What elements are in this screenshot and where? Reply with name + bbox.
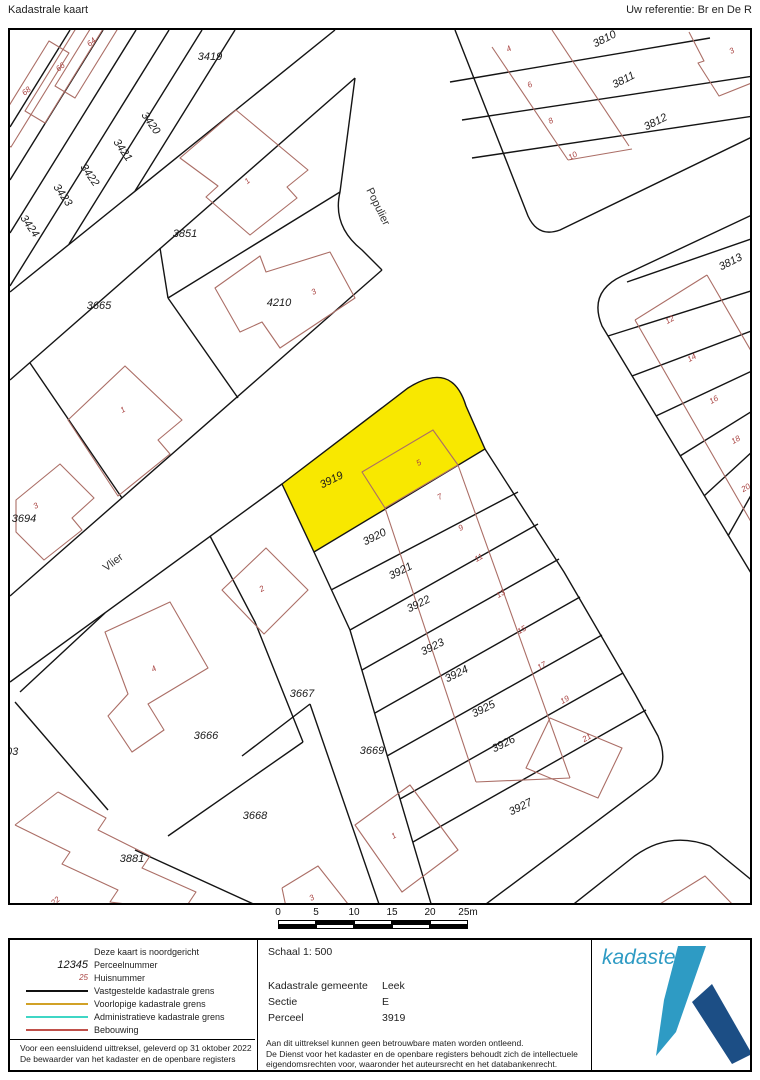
parcel-number-label: 3666 [194,730,219,742]
scale-tick-label: 15 [386,907,397,918]
scale-bar-segment [392,924,430,929]
legend-label: Voorlopige kadastrale grens [94,999,206,1009]
parcel-number-label: 3423 [51,182,75,210]
parcel-number-label: 3811 [610,70,637,91]
house-number-label: 17 [536,659,549,672]
house-number-label: 7 [436,492,445,502]
detail-value: E [382,996,389,1008]
parcel-number-label: 3923 [419,636,447,658]
scale-tick-label: 0 [275,907,281,918]
parcel-number-label: 3926 [490,733,518,755]
house-number-label: 4 [150,664,159,674]
scale-bar: 0510152025m [262,907,492,933]
legend-row: Administratieve kadastrale grens [10,1011,250,1024]
kadaster-logo: kadaster [592,940,750,1070]
footer-panel: Deze kaart is noordgericht12345Perceelnu… [8,938,752,1072]
parcel-number-label: 3925 [470,698,498,720]
disclaimer-line: Aan dit uittreksel kunnen geen betrouwba… [266,1038,524,1048]
house-number-label: 9 [457,523,466,533]
scale-tick-label: 25m [458,907,477,918]
legend-row: 12345Perceelnummer [10,959,250,972]
legend-label: Administratieve kadastrale grens [94,1012,225,1022]
parcel-number-label: 3665 [87,300,112,312]
house-number-label: 11 [473,552,485,564]
house-number-label: 3 [308,893,317,903]
parcel-number-label: 3419 [198,51,222,63]
legend-row: Voorlopige kadastrale grens [10,998,250,1011]
legend-note: Voor een eensluidend uittreksel, gelever… [20,1043,252,1053]
detail-value: Leek [382,980,405,992]
scale-bar-segment [354,924,392,929]
street-name-label: Populier [363,186,392,228]
house-number-label: 19 [559,693,572,706]
legend-row: Bebouwing [10,1024,250,1037]
scale-tick-label: 10 [348,907,359,918]
house-number-label: 1 [119,405,127,415]
detail-label: Perceel [268,1012,304,1024]
legend-symbol [20,1024,88,1037]
legend-label: Huisnummer [94,973,145,983]
detail-row: Perceel3919 [268,1012,304,1024]
house-number-label: 1 [390,831,398,841]
parcel-number-label: 3851 [173,228,197,240]
house-number-label: 3 [310,287,319,297]
detail-row: SectieE [268,996,297,1008]
parcel-number-label: 3813 [717,251,745,273]
scale-bar-segment [278,924,316,929]
kadastrale-kaart-page: Kadastrale kaart Uw referentie: Br en De… [0,0,760,1080]
house-number-label: 18 [730,433,743,446]
parcel-number-label: 3422 [78,162,102,189]
scale-text: Schaal 1: 500 [268,946,332,958]
house-number-label: 1 [243,176,252,186]
parcel-number-label: 3420 [139,110,163,138]
parcel-number-label: 3921 [387,560,414,582]
house-number-label: 20 [739,481,750,494]
street-name-label: Vlier [101,551,126,574]
parcel-number-label: 3424 [18,213,42,240]
parcel-number-label: 3903 [10,746,19,758]
detail-label: Sectie [268,996,297,1008]
detail-row: Kadastrale gemeenteLeek [268,980,368,992]
house-number-label: 15 [516,623,529,636]
legend-symbol [20,946,88,959]
parcel-number-label: 3924 [443,663,470,685]
house-number-label: 3 [728,46,737,56]
house-number-label: 66 [54,60,67,73]
detail-label: Kadastrale gemeente [268,980,368,992]
parcel-number-label: 3920 [361,526,389,548]
legend-label: Perceelnummer [94,960,158,970]
house-number-label: 4 [505,44,514,54]
parcel-number-label: 3669 [360,745,384,757]
detail-value: 3919 [382,1012,405,1024]
house-number-label: 3 [32,501,41,511]
parcel-number-label: 3694 [12,513,36,525]
legend-symbol: 12345 [20,959,88,972]
legend-label: Bebouwing [94,1025,139,1035]
parcel-number-label: 3927 [507,796,535,818]
legend-symbol [20,985,88,998]
house-number-label: 6 [526,80,535,90]
parcel-number-label: 3810 [591,30,619,50]
reference-text: Uw referentie: Br en De R [626,4,752,16]
header: Kadastrale kaart Uw referentie: Br en De… [8,4,752,16]
parcel-number-label: 3881 [120,853,144,865]
legend-row: 25Huisnummer [10,972,250,985]
scale-bar-segment [316,924,354,929]
map-area: 3419342034213422342334243851366542103694… [8,28,752,905]
scale-tick-label: 5 [313,907,319,918]
parcel-number-label: 3668 [243,810,268,822]
parcel-number-label: 3421 [111,137,135,164]
page-title: Kadastrale kaart [8,4,88,16]
legend-note: De bewaarder van het kadaster en de open… [20,1054,235,1064]
legend-label: Deze kaart is noordgericht [94,947,199,957]
house-number-label: 68 [20,84,33,97]
parcel-number-label: 4210 [267,297,292,309]
legend-label: Vastgestelde kadastrale grens [94,986,214,996]
disclaimer-line: eigendomsrechten voor, waaronder het aut… [266,1059,557,1069]
legend-divider [10,1039,255,1040]
legend-symbol [20,998,88,1011]
legend-row: Deze kaart is noordgericht [10,946,250,959]
house-number-label: 22 [48,894,62,903]
legend-row: Vastgestelde kadastrale grens [10,985,250,998]
house-number-label: 2 [257,584,267,595]
legend-symbol: 25 [20,972,88,985]
house-number-label: 64 [85,35,98,48]
legend-symbol [20,1011,88,1024]
house-number-label: 14 [686,351,699,364]
legend: Deze kaart is noordgericht12345Perceelnu… [10,940,258,1070]
house-number-label: 16 [708,393,721,406]
parcel-number-label: 3667 [290,688,315,700]
cadastral-map: 3419342034213422342334243851366542103694… [10,30,750,903]
house-number-label: 21 [580,732,593,745]
scale-bar-segment [430,924,468,929]
house-number-label: 8 [547,116,556,126]
scale-tick-label: 20 [424,907,435,918]
map-details: Schaal 1: 500 Kadastrale gemeenteLeekSec… [258,940,592,1070]
disclaimer-line: De Dienst voor het kadaster en de openba… [266,1049,578,1059]
kadaster-logo-icon [592,940,750,1070]
